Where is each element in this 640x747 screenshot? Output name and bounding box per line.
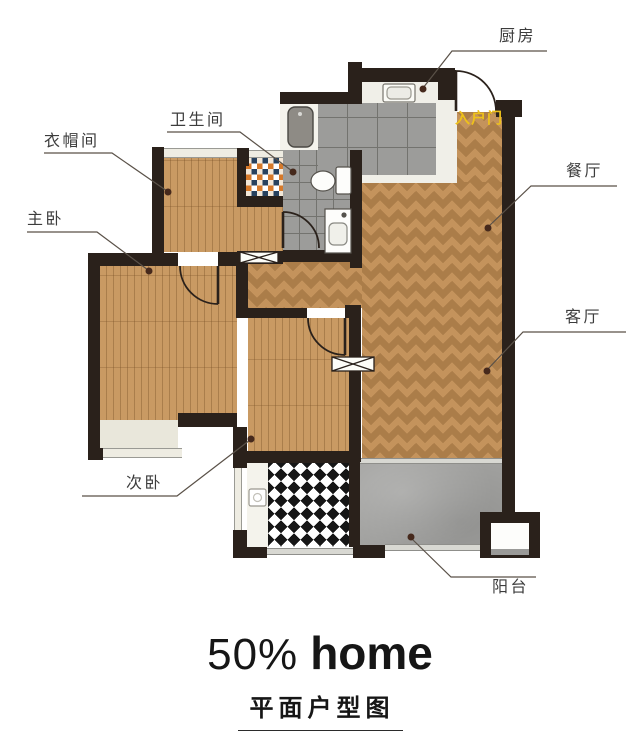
- brand-block: 50% home 平面户型图: [0, 626, 640, 731]
- master-bay-window-floor: [100, 420, 178, 448]
- second-bedroom-label: 次卧: [126, 476, 163, 492]
- balcony-rail-left: [267, 548, 353, 555]
- wall-segment: [502, 115, 515, 512]
- wall-segment: [237, 196, 283, 207]
- bathroom-label: 卫生间: [170, 113, 226, 129]
- wall-segment: [233, 451, 355, 463]
- dining-label: 餐厅: [566, 164, 603, 180]
- wall-segment: [88, 253, 178, 266]
- balcony-column-inner: [491, 523, 529, 549]
- wall-segment: [283, 250, 350, 262]
- balcony-label: 阳台: [492, 580, 529, 596]
- second-bedroom-floor: [248, 318, 349, 451]
- master-bedroom-floor-strip: [100, 413, 178, 420]
- kitchen-floor: [318, 103, 438, 177]
- wall-segment: [218, 252, 237, 266]
- balcony-sliding-door: [360, 458, 503, 464]
- wall-segment: [88, 448, 103, 460]
- kitchen-counter: [350, 82, 450, 103]
- wall-segment: [349, 462, 360, 547]
- wall-segment: [178, 413, 237, 427]
- vestibule-window: [245, 150, 283, 158]
- kitchen-marble-right: [436, 93, 457, 182]
- living-label: 客厅: [565, 310, 602, 326]
- master-bedroom-label: 主卧: [27, 212, 64, 228]
- balcony-laundry-floor: [247, 462, 268, 547]
- wall-segment: [237, 251, 283, 264]
- master-bedroom-floor: [100, 266, 237, 413]
- wall-segment: [237, 308, 307, 318]
- entrance-label: 入户门: [455, 111, 503, 126]
- floor-plan-page: 厨房 入户门 餐厅 客厅 卫生间 衣帽间 主卧 次卧 阳台 50% home 平…: [0, 0, 640, 747]
- kitchen-label: 厨房: [499, 29, 536, 45]
- dining-living-floor: [362, 182, 503, 463]
- bath-vestibule-mosaic-floor: [246, 158, 283, 196]
- master-bay-window: [98, 448, 182, 458]
- wall-segment: [88, 253, 100, 460]
- balcony-left-window: [234, 468, 242, 532]
- entrance-door: [456, 71, 496, 111]
- bathtub-nook-floor: [280, 104, 318, 150]
- balcony-column-strip: [491, 549, 529, 555]
- wall-segment: [353, 545, 385, 558]
- brand-name: home: [310, 626, 433, 680]
- corridor-floor: [248, 262, 362, 308]
- kitchen-marble-bottom: [350, 175, 457, 183]
- wall-segment: [349, 308, 361, 462]
- cloakroom-window: [164, 148, 237, 158]
- brand-prefix: 50%: [207, 630, 298, 680]
- wall-segment: [438, 70, 456, 100]
- cloakroom-label: 衣帽间: [44, 134, 100, 150]
- wall-segment: [237, 158, 246, 196]
- wall-segment: [350, 150, 362, 268]
- balcony-rail-right: [385, 544, 481, 551]
- wall-segment: [233, 547, 267, 558]
- brand-caption: 平面户型图: [238, 688, 403, 731]
- balcony-checker-floor: [268, 462, 349, 547]
- wall-segment: [152, 147, 164, 253]
- brand-logo: 50% home: [0, 626, 640, 680]
